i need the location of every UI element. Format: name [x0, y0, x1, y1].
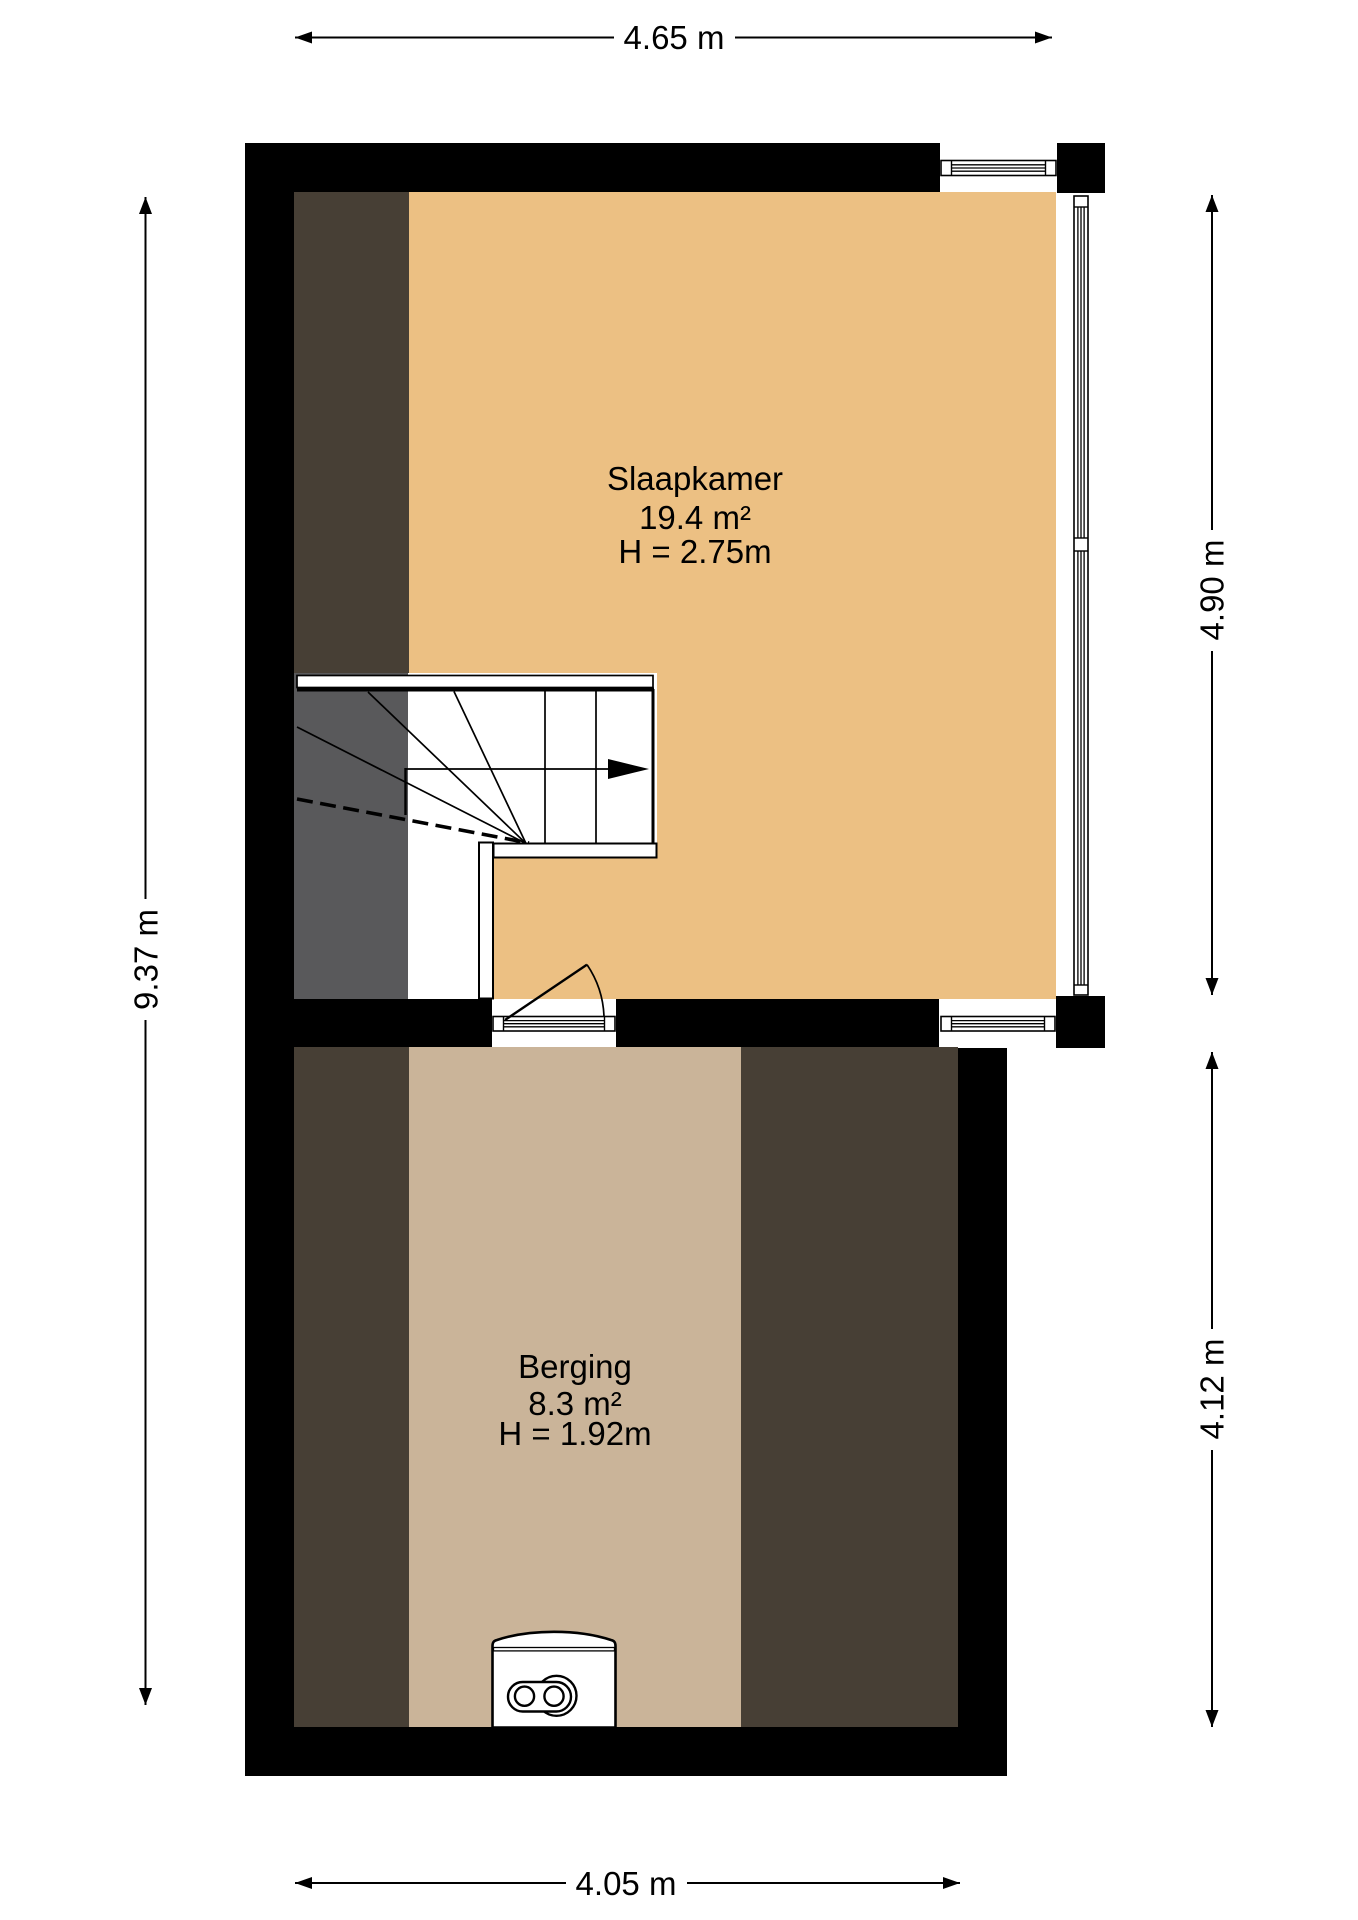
svg-text:Berging: Berging: [518, 1348, 632, 1385]
svg-text:H = 1.92m: H = 1.92m: [498, 1415, 651, 1452]
svg-text:4.90 m: 4.90 m: [1194, 540, 1231, 641]
svg-text:4.65 m: 4.65 m: [624, 19, 725, 56]
svg-text:19.4 m²: 19.4 m²: [639, 499, 751, 536]
svg-text:Slaapkamer: Slaapkamer: [607, 460, 783, 497]
svg-text:H = 2.75m: H = 2.75m: [618, 533, 771, 570]
svg-text:9.37 m: 9.37 m: [128, 909, 165, 1010]
svg-text:4.05 m: 4.05 m: [576, 1865, 677, 1902]
svg-text:4.12 m: 4.12 m: [1194, 1339, 1231, 1440]
